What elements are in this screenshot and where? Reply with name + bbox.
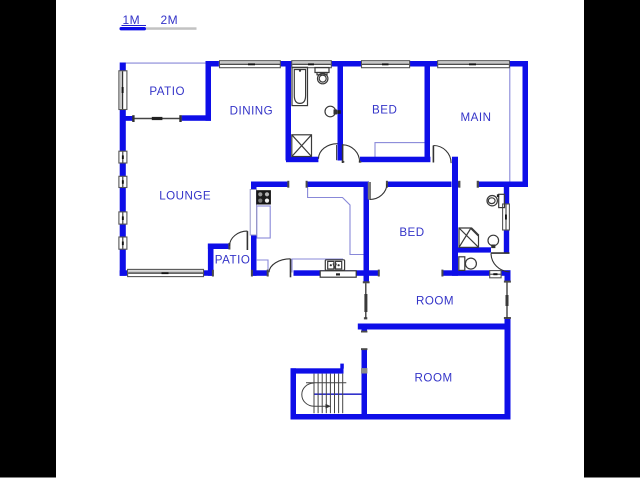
- svg-text:PATIO: PATIO: [149, 85, 185, 98]
- svg-text:MAIN: MAIN: [461, 111, 492, 124]
- svg-text:ROOM: ROOM: [415, 372, 453, 385]
- svg-text:1M: 1M: [123, 13, 141, 27]
- svg-text:ROOM: ROOM: [416, 294, 454, 307]
- svg-text:PATIO: PATIO: [215, 254, 251, 267]
- svg-text:DINING: DINING: [230, 105, 274, 118]
- svg-text:2M: 2M: [161, 13, 179, 27]
- svg-text:BED: BED: [399, 226, 424, 239]
- svg-text:LOUNGE: LOUNGE: [159, 190, 211, 203]
- svg-text:BED: BED: [372, 103, 397, 116]
